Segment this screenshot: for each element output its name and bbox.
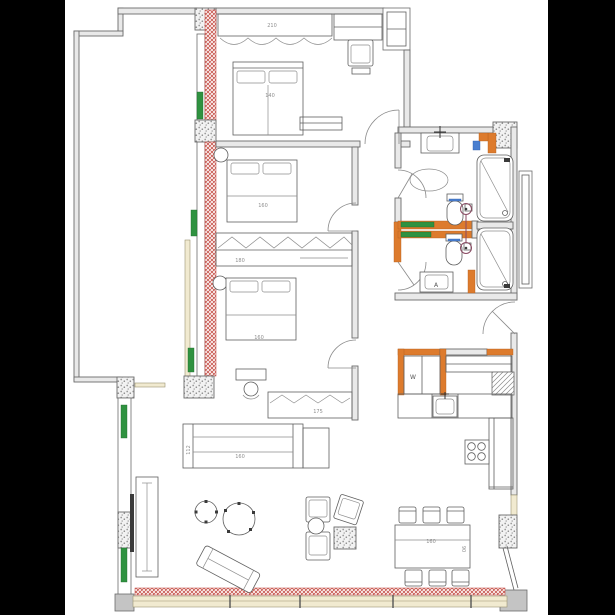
plumbing-corner-h [479, 133, 488, 141]
label-console: 160 [235, 454, 245, 460]
label-wardrobe-bottom: 175 [313, 409, 323, 415]
pier-mid-1 [195, 120, 216, 142]
radiator-divider-1 [401, 222, 434, 227]
bed-3 [226, 278, 296, 340]
label-console-side: 112 [186, 445, 192, 455]
label-dining-side: 90 [460, 546, 466, 552]
radiator-1 [197, 92, 203, 119]
floor-plan-svg: 210 140 160 180 160 175 160 112 160 90 W… [0, 0, 615, 615]
bed-2 [227, 160, 297, 222]
demolished-wall-living [135, 383, 165, 387]
shaft-column [492, 372, 514, 395]
pier-mid-2 [184, 376, 214, 398]
dining-table [395, 525, 470, 568]
kitchen-sink [433, 392, 457, 417]
pier-se [499, 515, 517, 548]
paper-background [0, 0, 615, 615]
bathtub-2 [477, 228, 513, 290]
label-wardrobe-mid: 180 [235, 258, 245, 264]
new-wall-vertical-lower [205, 142, 216, 376]
south-window-band [133, 588, 507, 608]
radiator-4 [121, 405, 127, 438]
pier-living-nw [117, 377, 134, 398]
plumbing-corner-v [488, 133, 496, 153]
floor-plan-image: 210 140 160 180 160 175 160 112 160 90 W… [0, 0, 615, 615]
corner-sw [115, 594, 134, 611]
radiator-5 [121, 548, 127, 582]
plumbing-strip [468, 270, 475, 293]
right-black-bar [548, 0, 615, 615]
radiator-divider-2 [401, 232, 431, 237]
bedside-table [213, 276, 227, 290]
label-bed-1: 140 [265, 93, 275, 99]
new-wall-south [135, 588, 505, 595]
new-wall-vertical-upper [205, 10, 216, 122]
column-block [334, 527, 356, 549]
toilet-2 [446, 234, 462, 265]
label-bed-2: 160 [258, 203, 268, 209]
hob [465, 440, 489, 464]
label-bed-3: 160 [254, 335, 264, 341]
french-window [519, 171, 532, 288]
radiator-3 [188, 348, 194, 372]
radiator-2 [191, 210, 197, 236]
label-dining: 160 [426, 539, 436, 545]
window-right-small [511, 495, 517, 515]
vent-shaft [383, 8, 410, 50]
side-table [308, 518, 324, 534]
tv-screen [130, 494, 134, 552]
bathtub-1 [477, 155, 513, 221]
old-wall [197, 34, 205, 378]
pier-left-wall [118, 512, 131, 548]
label-washer: W [410, 374, 416, 381]
label-wardrobe-top: 210 [267, 23, 277, 29]
left-black-bar [0, 0, 65, 615]
bedside-table [214, 148, 228, 162]
window-glazing-south [133, 596, 507, 607]
fixture-blue [473, 141, 480, 150]
